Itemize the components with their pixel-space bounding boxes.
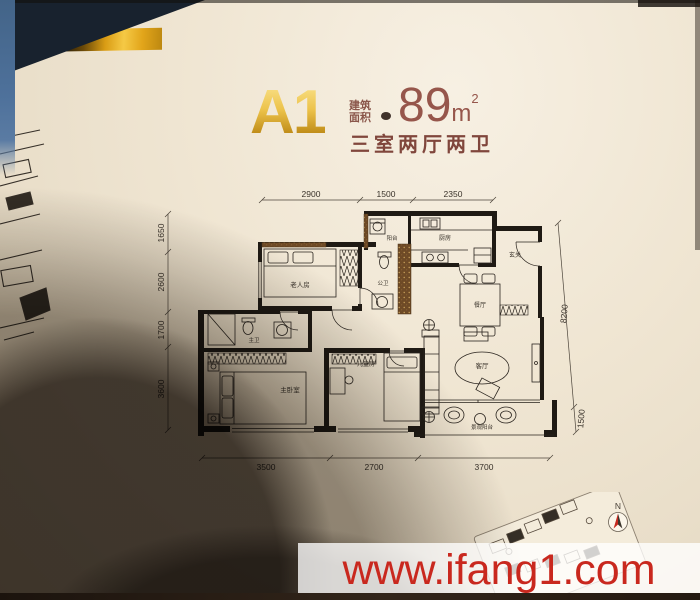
room-label-foyer: 玄关 — [509, 251, 521, 259]
room-label-kitchen: 厨房 — [439, 234, 451, 242]
dim-left-1: 1650 — [158, 223, 166, 242]
dim-bottom-1: 3500 — [257, 462, 276, 472]
area-superscript: 2 — [471, 91, 478, 106]
dim-right-2: 1500 — [575, 409, 587, 429]
area-number: 89 — [398, 79, 451, 132]
dim-bottom-2: 2700 — [365, 462, 384, 472]
dim-left-2: 2600 — [158, 272, 166, 291]
dim-top-2: 1500 — [377, 189, 396, 199]
unit-code: A1 — [250, 82, 325, 144]
dim-right-1: 8200 — [558, 304, 570, 324]
watermark-band: www.ifang1.com — [298, 543, 700, 597]
photo-bottom-edge — [0, 593, 700, 600]
floorplan-drawing: 2900 1500 2350 1650 2600 1700 3600 8200 … — [158, 186, 614, 496]
phone-shadow-corner — [0, 0, 205, 76]
room-label-view-balcony: 景观阳台 — [471, 423, 494, 431]
photo-right-edge — [695, 0, 700, 250]
photo-top-right-corner — [638, 0, 700, 7]
area-unit: m — [451, 100, 471, 127]
room-label-dining: 餐厅 — [474, 301, 486, 309]
room-label-balcony: 阳台 — [386, 234, 398, 242]
room-label-public-bath: 公卫 — [377, 280, 389, 287]
furniture — [208, 218, 540, 425]
room-label-elder: 老人房 — [290, 280, 310, 289]
room-label-kids: 儿童房 — [357, 360, 375, 368]
photo-of-floorplan-page: A1 建筑 面积 89m2 三室两厅两卫 — [0, 0, 700, 600]
separator-dot — [381, 112, 391, 120]
room-label-living: 客厅 — [476, 361, 490, 370]
dimension-lines — [165, 197, 579, 461]
compass-north-label: N — [615, 501, 621, 511]
dim-top-3: 2350 — [444, 189, 463, 199]
dim-left-3: 1700 — [158, 320, 166, 339]
room-label-master-bath: 主卫 — [248, 336, 260, 344]
dim-top-1: 2900 — [302, 189, 321, 199]
area-label: 建筑 面积 — [349, 100, 371, 124]
blue-object-edge — [0, 0, 15, 175]
dim-bottom-3: 3700 — [475, 462, 494, 472]
area-value: 89m2 — [398, 82, 479, 130]
photo-top-edge — [0, 0, 700, 3]
watermark-text: www.ifang1.com — [342, 546, 655, 595]
room-label-master: 主卧室 — [280, 385, 300, 394]
dim-left-4: 3600 — [158, 379, 166, 398]
area-label-line2: 面积 — [349, 112, 371, 124]
area-label-line1: 建筑 — [349, 100, 371, 112]
layout-type-text: 三室两厅两卫 — [350, 128, 494, 157]
